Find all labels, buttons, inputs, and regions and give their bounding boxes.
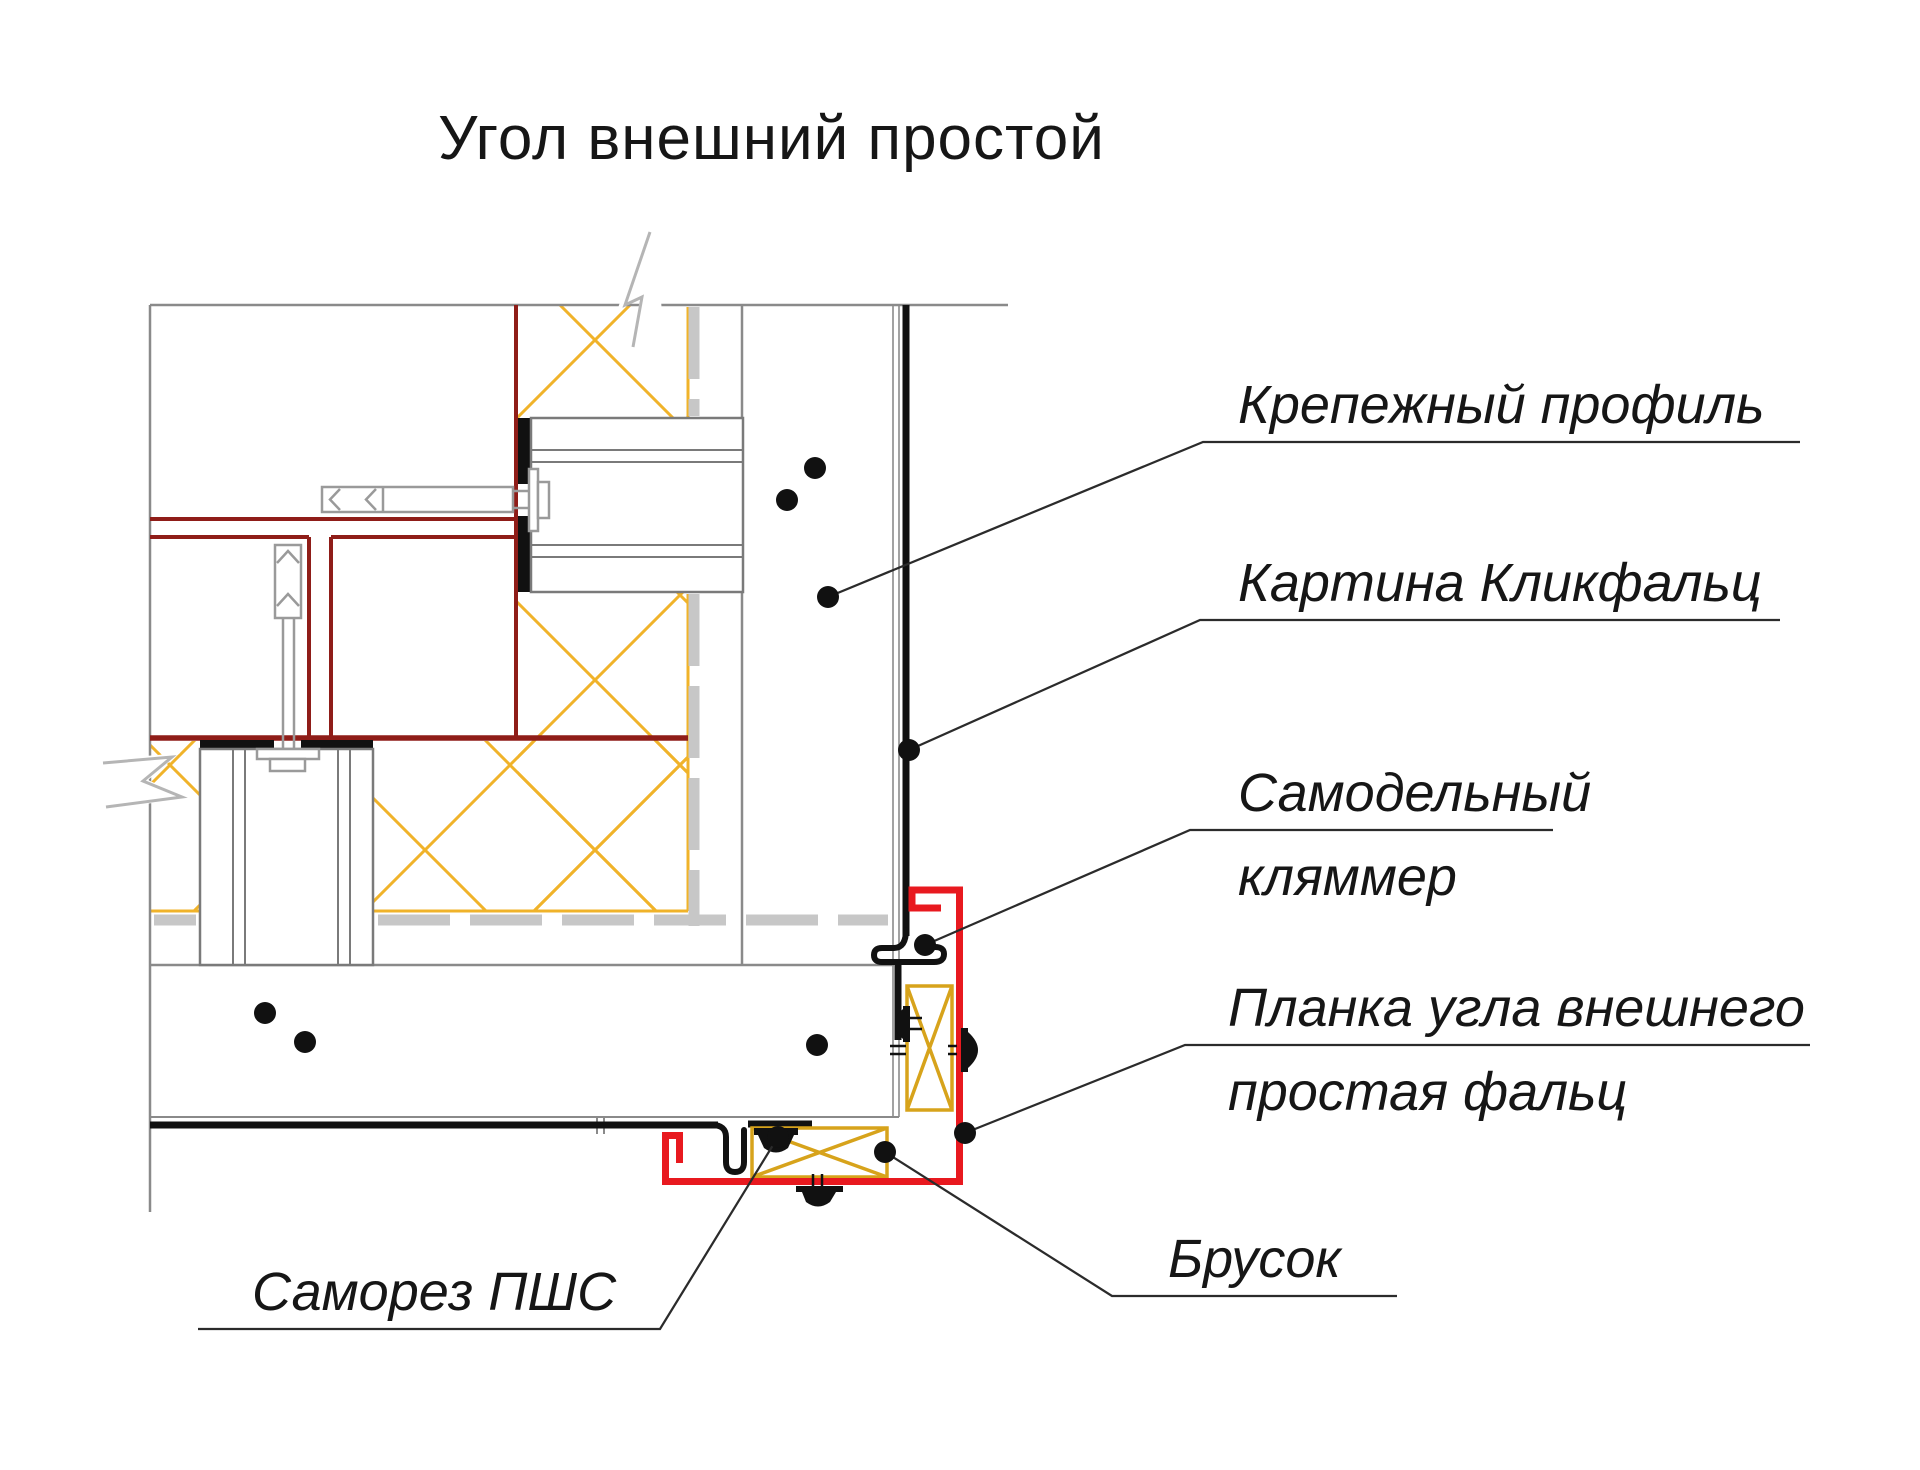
label-corner-strip-line2: простая фальц [1228,1065,1627,1119]
page-title: Угол внешний простой [438,103,1105,174]
fastening-profile-bottom-wall [200,740,373,965]
label-clamp-line1: Самодельный [1238,766,1591,820]
label-panel: Картина Кликфальц [1238,556,1762,610]
leader-panel [909,620,1780,750]
label-fastening-profile: Крепежный профиль [1238,378,1764,432]
wood-block-vertical [907,986,952,1110]
diagram-page: Угол внешний простой Крепежный профиль К… [0,0,1920,1470]
label-screw: Саморез ПШС [252,1265,616,1319]
label-block: Брусок [1168,1232,1341,1286]
label-clamp-line2: кляммер [1238,850,1457,904]
label-corner-strip-line1: Планка угла внешнего [1228,981,1805,1035]
fastening-profile-right-wall [518,418,743,592]
seam-fold-bottom [712,1125,744,1172]
corner-detail-drawing [0,0,1920,1470]
